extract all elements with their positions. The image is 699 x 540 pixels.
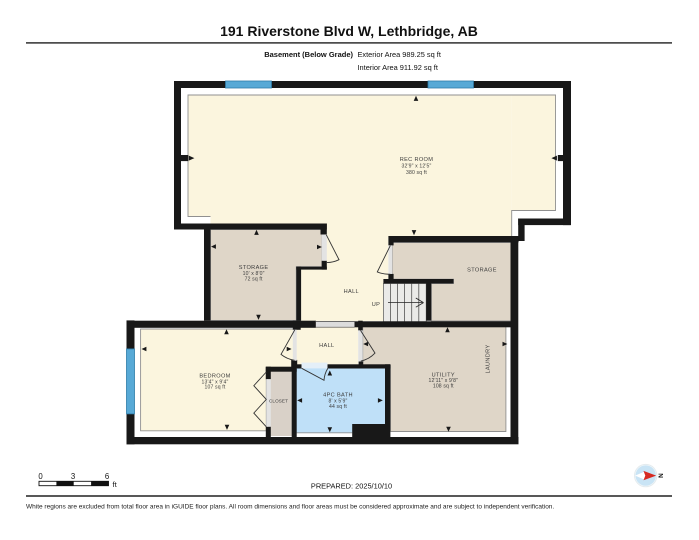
svg-text:LAUNDRY: LAUNDRY (485, 344, 491, 373)
svg-text:108 sq ft: 108 sq ft (433, 384, 454, 390)
svg-text:REC ROOM: REC ROOM (400, 157, 434, 163)
svg-text:380 sq ft: 380 sq ft (406, 170, 427, 176)
svg-text:CLOSET: CLOSET (269, 398, 288, 403)
svg-text:191 Riverstone Blvd W, Lethbri: 191 Riverstone Blvd W, Lethbridge, AB (220, 23, 478, 39)
svg-text:0: 0 (38, 472, 43, 481)
svg-text:32'9" x 12'5": 32'9" x 12'5" (402, 164, 432, 170)
svg-text:72 sq ft: 72 sq ft (245, 277, 263, 283)
svg-text:Interior Area 911.92 sq ft: Interior Area 911.92 sq ft (358, 63, 438, 72)
svg-text:ft: ft (113, 480, 118, 489)
svg-text:N: N (657, 473, 664, 478)
svg-text:UP: UP (372, 302, 380, 308)
svg-text:6: 6 (105, 472, 109, 481)
svg-text:3: 3 (71, 472, 75, 481)
svg-text:STORAGE: STORAGE (467, 268, 497, 274)
svg-text:Basement (Below Grade): Basement (Below Grade) (264, 50, 353, 59)
svg-text:Exterior Area 989.25 sq ft: Exterior Area 989.25 sq ft (358, 50, 441, 59)
svg-text:107 sq ft: 107 sq ft (205, 385, 226, 391)
svg-text:44 sq ft: 44 sq ft (329, 404, 347, 410)
svg-text:White regions are excluded fro: White regions are excluded from total fl… (26, 504, 554, 511)
svg-text:STORAGE: STORAGE (239, 265, 269, 271)
svg-text:HALL: HALL (344, 289, 359, 295)
svg-text:PREPARED: 2025/10/10: PREPARED: 2025/10/10 (311, 482, 392, 491)
svg-text:HALL: HALL (319, 343, 334, 349)
